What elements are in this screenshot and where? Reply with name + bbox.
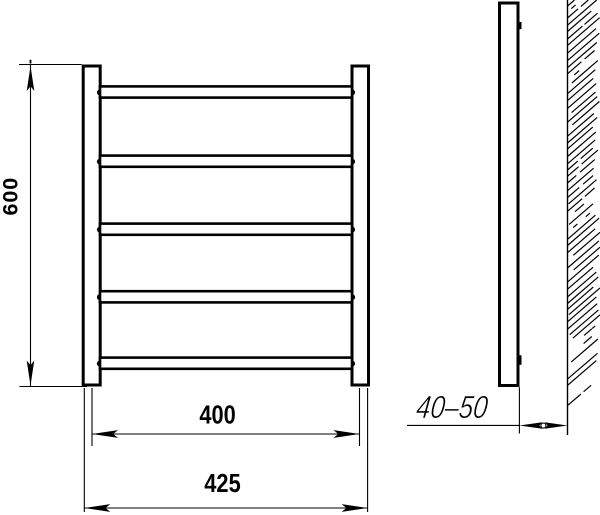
svg-text:40–50: 40–50 (414, 391, 490, 426)
svg-text:425: 425 (204, 469, 240, 498)
svg-text:400: 400 (199, 401, 235, 430)
svg-text:600: 600 (0, 177, 23, 216)
